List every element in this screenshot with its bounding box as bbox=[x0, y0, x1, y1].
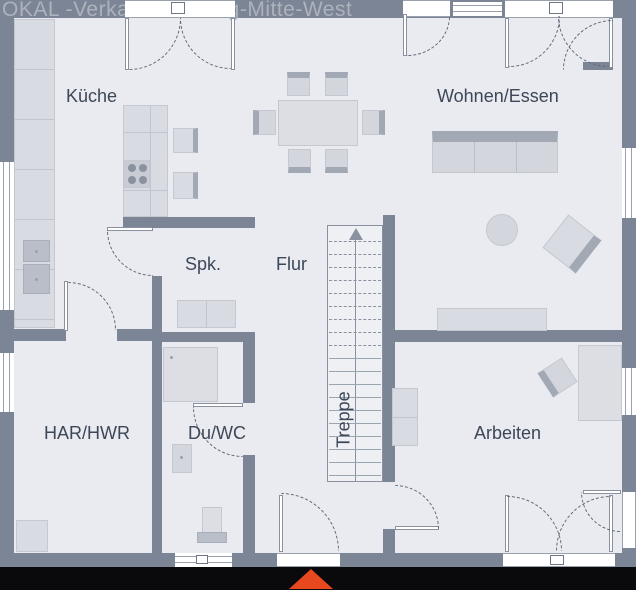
dining-chair bbox=[253, 110, 276, 135]
opening-door-right-bottom bbox=[622, 492, 636, 548]
window-har-left bbox=[0, 353, 14, 412]
kitchen-cabinet bbox=[173, 128, 198, 153]
window-marker-duwc bbox=[196, 555, 208, 564]
door-swing-arc-entrance bbox=[281, 493, 339, 551]
room-label-spk: Spk. bbox=[185, 254, 221, 275]
door-swing-arc bbox=[180, 18, 231, 69]
opening-door-top-single bbox=[403, 0, 450, 17]
door-marker-wohnen-terrace bbox=[549, 2, 563, 14]
room-label-arbeiten: Arbeiten bbox=[474, 423, 541, 444]
sofa bbox=[432, 131, 558, 173]
door-swing-arc-spk bbox=[107, 230, 153, 276]
wall-duwc-right-upper bbox=[243, 342, 255, 403]
window-top bbox=[453, 2, 502, 16]
armchair bbox=[543, 215, 602, 274]
wall-wohnen-arbeiten bbox=[383, 330, 622, 342]
wall-duwc-top bbox=[152, 332, 255, 342]
door-swing-arc bbox=[129, 18, 181, 70]
room-label-du-wc: Du/WC bbox=[188, 423, 246, 444]
door-marker-kueche-terrace bbox=[171, 2, 185, 14]
room-label-treppe: Treppe bbox=[334, 385, 355, 455]
cooktop bbox=[124, 160, 150, 188]
entrance-arrow-icon bbox=[289, 569, 333, 589]
door-swing-arc-har bbox=[68, 282, 116, 330]
door-swing-arc bbox=[507, 496, 562, 551]
door-swing-arc bbox=[509, 16, 560, 67]
wall-right bbox=[622, 0, 636, 567]
floor-plan: OKAL -Verkauf Siedlung-Mitte-West bbox=[0, 0, 636, 590]
wall-duwc-right-lower bbox=[243, 455, 255, 553]
toilet bbox=[202, 507, 222, 534]
opening-entrance-door bbox=[277, 553, 340, 567]
toilet-base bbox=[197, 532, 227, 543]
window-wohnen-right bbox=[622, 148, 636, 218]
washing-machine bbox=[16, 520, 48, 552]
dining-table bbox=[278, 100, 358, 146]
dining-chair bbox=[325, 72, 348, 96]
dining-chair bbox=[287, 72, 310, 96]
room-label-wohnen-essen: Wohnen/Essen bbox=[437, 86, 559, 107]
room-label-har-hwr: HAR/HWR bbox=[44, 423, 130, 444]
door-leaf bbox=[231, 18, 235, 70]
door-marker-arbeiten-terrace bbox=[550, 555, 564, 565]
wardrobe bbox=[578, 345, 622, 421]
door-swing-arc-arbeiten bbox=[395, 485, 439, 529]
door-swing-arc bbox=[407, 16, 450, 56]
dining-chair bbox=[288, 149, 311, 173]
room-label-kueche: Küche bbox=[66, 86, 117, 107]
window-arbeiten-right bbox=[622, 368, 636, 415]
room-label-flur: Flur bbox=[276, 254, 307, 275]
coffee-table bbox=[486, 214, 518, 246]
dining-chair bbox=[325, 149, 348, 173]
window-kueche-left bbox=[0, 162, 14, 310]
dining-chair bbox=[362, 110, 385, 135]
kitchen-cabinet bbox=[173, 172, 198, 199]
sideboard bbox=[437, 308, 547, 331]
wall-spk-duwc-left bbox=[152, 276, 162, 553]
wall-kueche-har bbox=[0, 329, 66, 341]
office-chair bbox=[537, 357, 577, 397]
wall-arbeiten-door-stub bbox=[383, 529, 395, 553]
